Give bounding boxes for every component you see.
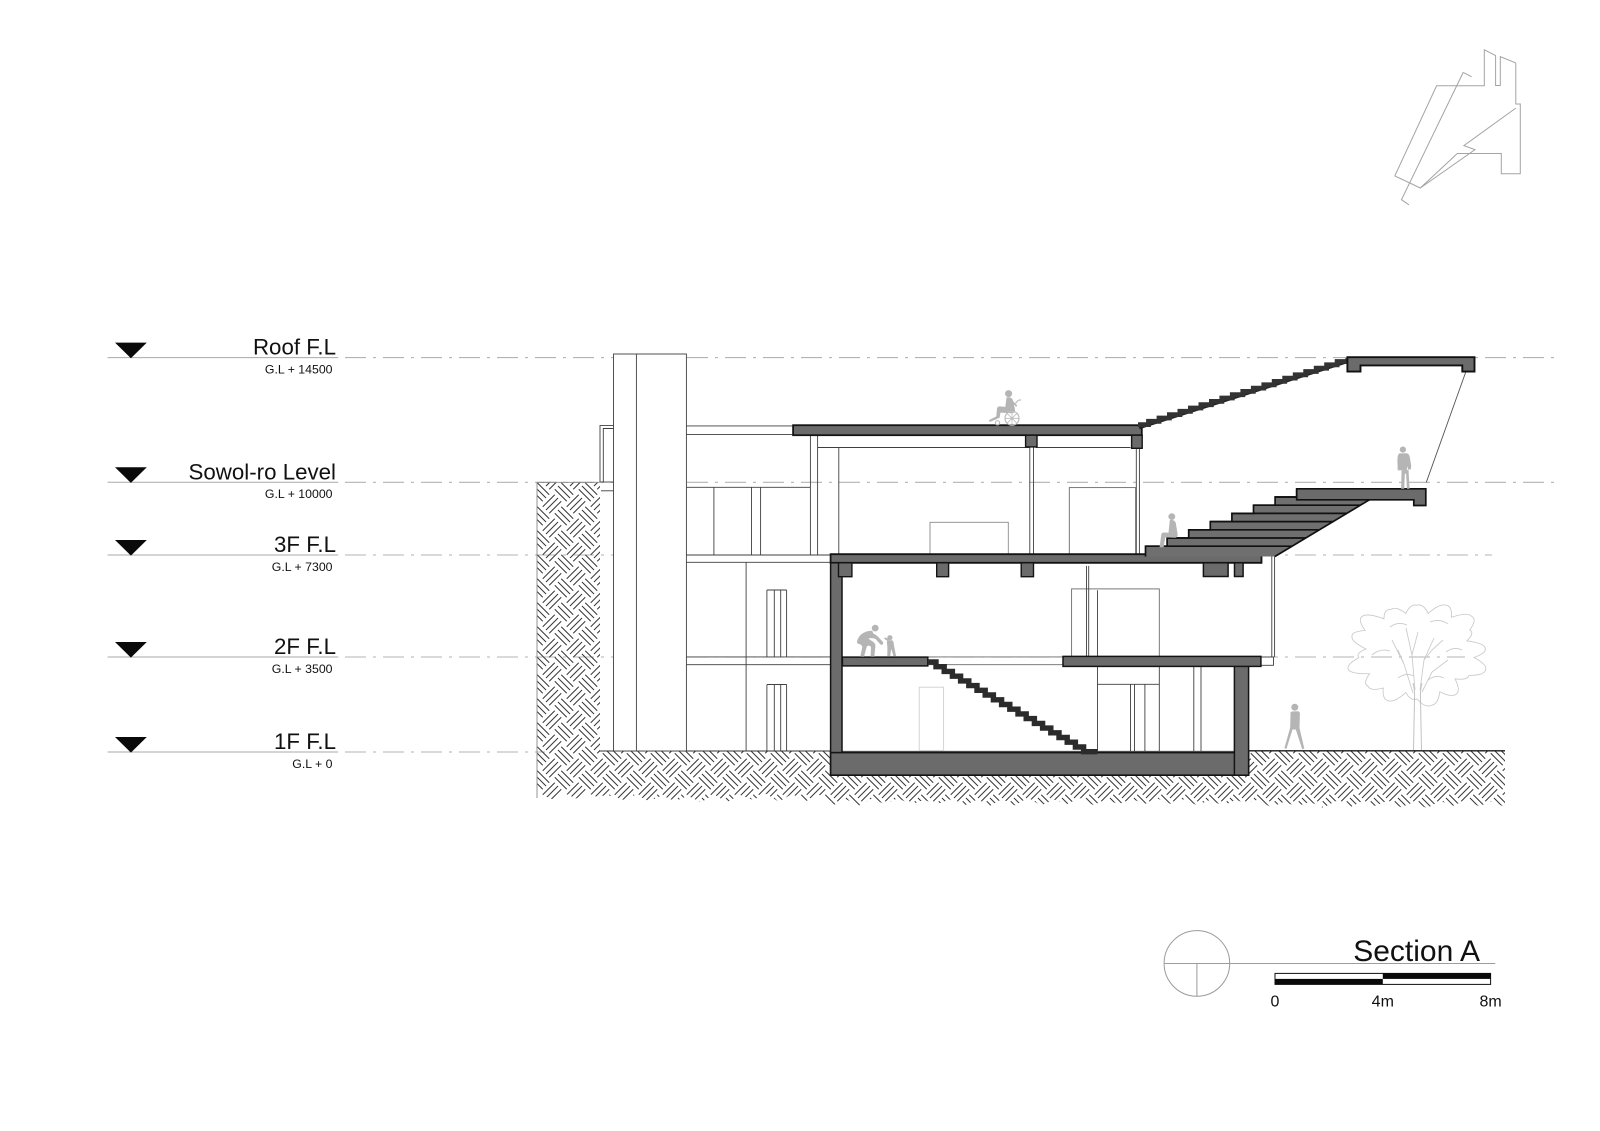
svg-text:4m: 4m [1372,994,1394,1011]
svg-text:Section A: Section A [1353,935,1480,968]
svg-text:Sowol-ro Level: Sowol-ro Level [189,459,336,484]
svg-text:G.L + 7300: G.L + 7300 [272,560,333,574]
svg-text:3F F.L: 3F F.L [274,532,336,557]
svg-text:G.L + 10000: G.L + 10000 [265,487,333,501]
svg-text:2F F.L: 2F F.L [274,634,336,659]
svg-text:Roof F.L: Roof F.L [253,335,336,360]
svg-text:G.L + 3500: G.L + 3500 [272,662,333,676]
svg-text:G.L + 0: G.L + 0 [292,757,332,771]
svg-text:8m: 8m [1479,994,1501,1011]
svg-text:1F F.L: 1F F.L [274,729,336,754]
svg-text:0: 0 [1271,994,1280,1011]
svg-text:G.L + 14500: G.L + 14500 [265,362,333,376]
